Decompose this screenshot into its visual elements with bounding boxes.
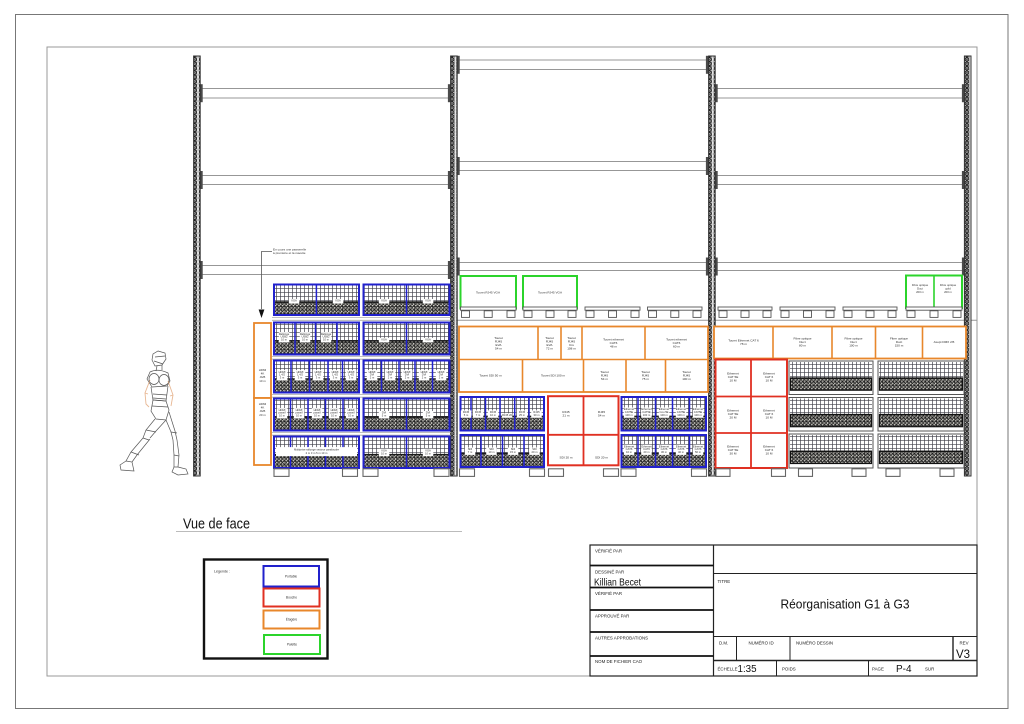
svg-text:VGA: VGA bbox=[381, 299, 387, 303]
svg-text:100 m: 100 m bbox=[682, 377, 691, 381]
svg-text:54 m: 54 m bbox=[495, 346, 502, 350]
svg-text:7 m: 7 m bbox=[468, 450, 473, 454]
svg-text:10 M: 10 M bbox=[730, 379, 737, 383]
svg-text:30 M: 30 M bbox=[730, 452, 737, 456]
svg-text:200 m: 200 m bbox=[944, 290, 952, 294]
svg-text:54 m: 54 m bbox=[598, 413, 605, 417]
svg-text:30 m: 30 m bbox=[661, 450, 668, 454]
svg-text:2 m: 2 m bbox=[422, 376, 427, 380]
svg-text:100 m: 100 m bbox=[694, 413, 702, 417]
svg-text:100 m: 100 m bbox=[643, 413, 651, 417]
svg-text:Touret SDI 100 m: Touret SDI 100 m bbox=[541, 374, 565, 378]
svg-text:10 m: 10 m bbox=[281, 338, 288, 342]
svg-text:2 m 3 m 5 m 10 m: 2 m 3 m 5 m 10 m bbox=[306, 451, 328, 455]
svg-text:VGA: VGA bbox=[425, 299, 431, 303]
svg-text:VÉRIFIÉ PAR: VÉRIFIÉ PAR bbox=[595, 591, 622, 596]
svg-text:POIDS: POIDS bbox=[782, 667, 796, 672]
svg-text:3 m: 3 m bbox=[316, 376, 321, 380]
svg-text:50 m: 50 m bbox=[695, 450, 702, 454]
svg-text:40 m: 40 m bbox=[678, 450, 685, 454]
svg-text:10 m: 10 m bbox=[490, 413, 497, 417]
svg-text:Killian Becet: Killian Becet bbox=[594, 578, 641, 589]
svg-text:10 m: 10 m bbox=[323, 338, 330, 342]
svg-text:80 m: 80 m bbox=[799, 344, 806, 348]
svg-text:100 m: 100 m bbox=[677, 413, 685, 417]
svg-text:VGA: VGA bbox=[335, 299, 341, 303]
svg-text:Étagère: Étagère bbox=[286, 617, 298, 622]
svg-text:NUMÉRO ID: NUMÉRO ID bbox=[749, 641, 774, 646]
svg-text:60 m: 60 m bbox=[673, 345, 680, 349]
svg-text:10 M: 10 M bbox=[766, 416, 773, 420]
svg-text:Touret SDI 50 m: Touret SDI 50 m bbox=[479, 374, 502, 378]
svg-text:TITRE: TITRE bbox=[718, 579, 731, 584]
svg-text:10 m: 10 m bbox=[279, 414, 286, 418]
svg-text:54 m: 54 m bbox=[601, 377, 608, 381]
svg-text:2 m: 2 m bbox=[370, 376, 375, 380]
svg-text:Palette: Palette bbox=[287, 643, 297, 647]
svg-text:ÉCHELLE: ÉCHELLE bbox=[718, 667, 738, 672]
svg-text:Vue de face: Vue de face bbox=[183, 517, 250, 533]
svg-text:78 m: 78 m bbox=[740, 342, 747, 346]
svg-text:150 m: 150 m bbox=[895, 344, 904, 348]
svg-text:20 M: 20 M bbox=[730, 416, 737, 420]
svg-text:48 m: 48 m bbox=[610, 345, 617, 349]
svg-text:1:35: 1:35 bbox=[738, 664, 758, 675]
svg-text:Légende :: Légende : bbox=[214, 570, 230, 574]
svg-text:30 m: 30 m bbox=[534, 413, 541, 417]
svg-text:100 m: 100 m bbox=[625, 413, 633, 417]
svg-text:10 m: 10 m bbox=[259, 379, 266, 383]
svg-text:20 m: 20 m bbox=[532, 450, 539, 454]
svg-text:10 m: 10 m bbox=[381, 451, 388, 455]
svg-text:VÉRIFIÉ PAR: VÉRIFIÉ PAR bbox=[595, 549, 622, 554]
svg-text:VGA: VGA bbox=[425, 338, 431, 342]
svg-text:PAGE: PAGE bbox=[872, 667, 884, 672]
svg-text:3 m: 3 m bbox=[280, 376, 285, 380]
svg-text:108 m: 108 m bbox=[567, 346, 576, 350]
svg-text:10 m: 10 m bbox=[348, 414, 355, 418]
svg-text:10 m: 10 m bbox=[314, 414, 321, 418]
svg-text:APPROUVÉ PAR: APPROUVÉ PAR bbox=[595, 614, 629, 619]
svg-text:Portable: Portable bbox=[285, 575, 297, 579]
svg-text:72 m: 72 m bbox=[546, 346, 553, 350]
svg-text:2 m: 2 m bbox=[405, 376, 410, 380]
svg-text:Touret RJ45 VGA: Touret RJ45 VGA bbox=[538, 291, 563, 295]
svg-text:10 m: 10 m bbox=[626, 450, 633, 454]
svg-text:10 m: 10 m bbox=[331, 414, 338, 418]
svg-text:5 m: 5 m bbox=[382, 414, 387, 418]
svg-text:100 m: 100 m bbox=[660, 413, 668, 417]
svg-text:15 m: 15 m bbox=[510, 450, 517, 454]
svg-text:VGA: VGA bbox=[291, 299, 297, 303]
svg-text:3 m: 3 m bbox=[333, 376, 338, 380]
svg-text:SUR: SUR bbox=[925, 667, 934, 672]
svg-text:Bouche: Bouche bbox=[286, 596, 297, 600]
svg-text:DESSINÉ PAR: DESSINÉ PAR bbox=[595, 570, 624, 575]
svg-text:Axept DMX 2/5: Axept DMX 2/5 bbox=[934, 340, 955, 344]
svg-text:3 m: 3 m bbox=[349, 376, 354, 380]
svg-text:75 m: 75 m bbox=[642, 377, 649, 381]
svg-text:20 m: 20 m bbox=[644, 450, 651, 454]
svg-text:5 m: 5 m bbox=[426, 414, 431, 418]
svg-text:100 m: 100 m bbox=[849, 344, 858, 348]
svg-text:AUTRES APPROBATIONS: AUTRES APPROBATIONS bbox=[595, 636, 648, 641]
svg-text:RJ45 20: RJ45 20 bbox=[502, 413, 513, 417]
svg-text:P-4: P-4 bbox=[896, 664, 912, 675]
svg-text:10 m: 10 m bbox=[489, 450, 496, 454]
svg-text:10 M: 10 M bbox=[766, 452, 773, 456]
svg-text:7 m: 7 m bbox=[476, 413, 481, 417]
svg-text:10 m: 10 m bbox=[302, 338, 309, 342]
svg-text:5 m: 5 m bbox=[464, 413, 469, 417]
svg-text:V3: V3 bbox=[956, 649, 970, 661]
svg-text:Touret RJ45 VGA: Touret RJ45 VGA bbox=[476, 291, 501, 295]
svg-text:NOM DE FICHIER CAO: NOM DE FICHIER CAO bbox=[595, 659, 643, 664]
svg-text:10 M: 10 M bbox=[766, 379, 773, 383]
svg-text:10 m: 10 m bbox=[425, 451, 432, 455]
svg-text:2 m: 2 m bbox=[388, 376, 393, 380]
svg-text:21 m: 21 m bbox=[563, 413, 570, 417]
svg-text:SDI 20 m: SDI 20 m bbox=[560, 456, 573, 460]
svg-text:10 m: 10 m bbox=[296, 414, 303, 418]
svg-text:REV: REV bbox=[960, 641, 969, 646]
svg-text:200 m: 200 m bbox=[916, 290, 924, 294]
svg-text:D.M.: D.M. bbox=[719, 641, 728, 646]
svg-text:20 m: 20 m bbox=[259, 413, 266, 417]
svg-text:NUMÉRO DESSIN: NUMÉRO DESSIN bbox=[796, 641, 833, 646]
svg-text:à première et la navette: à première et la navette bbox=[273, 251, 306, 255]
svg-text:2 m: 2 m bbox=[439, 376, 444, 380]
svg-text:Réorganisation G1 à G3: Réorganisation G1 à G3 bbox=[781, 598, 910, 612]
svg-text:3 m: 3 m bbox=[298, 376, 303, 380]
svg-text:25 m: 25 m bbox=[519, 413, 526, 417]
svg-text:VGA: VGA bbox=[381, 338, 387, 342]
svg-text:SDI 20 m: SDI 20 m bbox=[595, 456, 608, 460]
